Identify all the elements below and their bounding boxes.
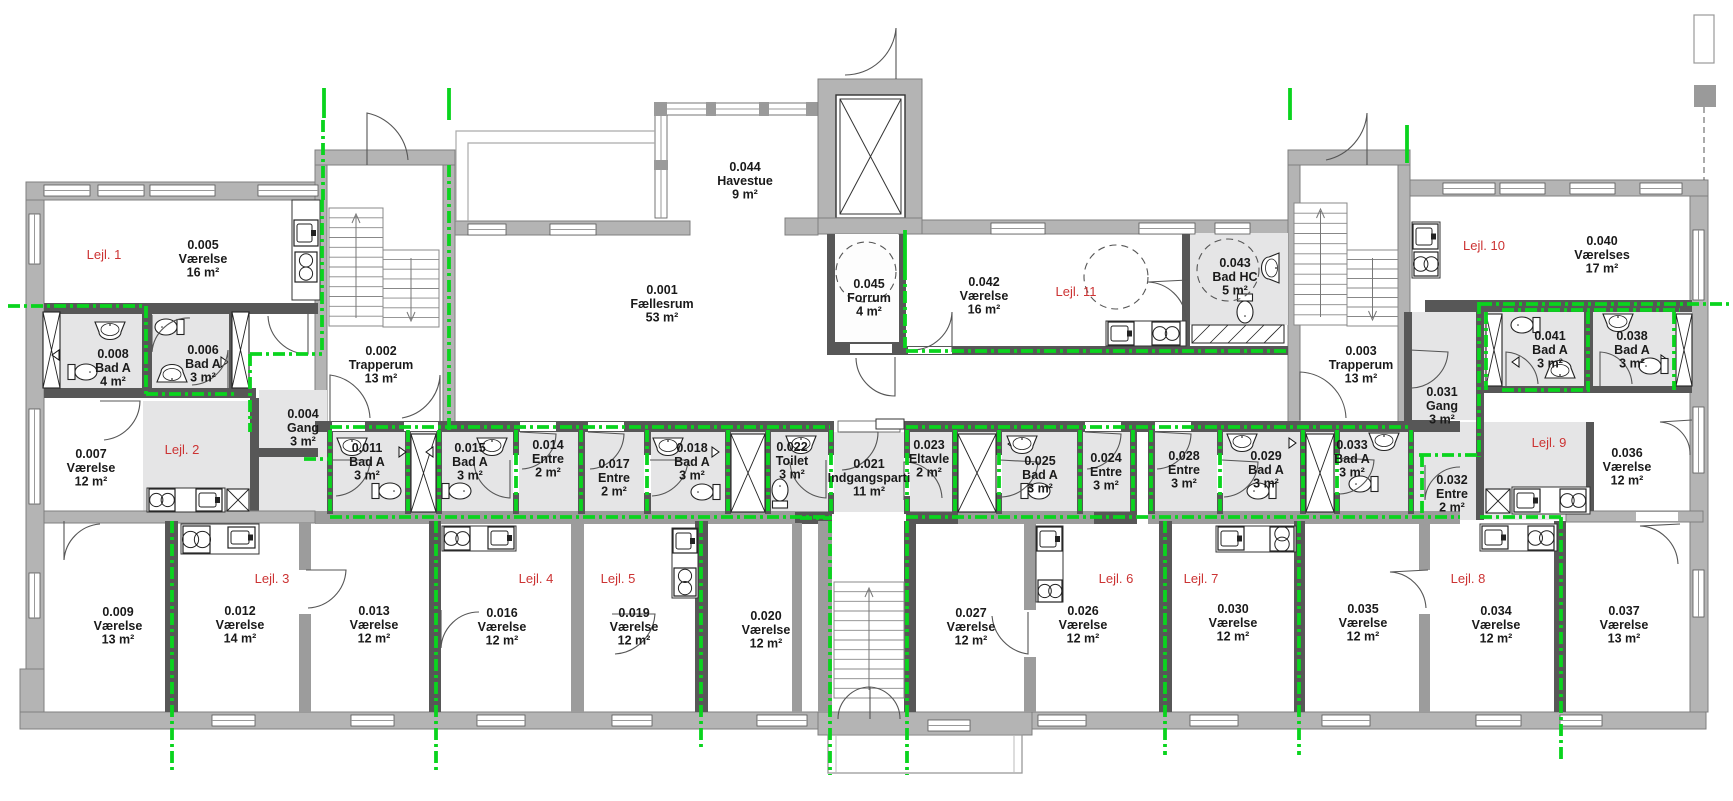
svg-text:Lejl. 1: Lejl. 1 xyxy=(87,247,122,262)
svg-text:0.028Entre3 m²: 0.028Entre3 m² xyxy=(1168,449,1200,491)
svg-text:0.029Bad A3 m²: 0.029Bad A3 m² xyxy=(1248,449,1284,491)
svg-text:0.008Bad A4 m²: 0.008Bad A4 m² xyxy=(95,347,131,389)
svg-text:0.033Bad A3 m²: 0.033Bad A3 m² xyxy=(1334,438,1370,480)
svg-text:Lejl. 11: Lejl. 11 xyxy=(1056,284,1097,299)
svg-text:0.025Bad A3 m²: 0.025Bad A3 m² xyxy=(1022,454,1058,496)
svg-text:0.022Toilet3 m²: 0.022Toilet3 m² xyxy=(776,440,809,482)
svg-text:0.038Bad A3 m²: 0.038Bad A3 m² xyxy=(1614,329,1650,371)
svg-text:Lejl. 5: Lejl. 5 xyxy=(601,571,636,586)
svg-text:0.006Bad A3 m²: 0.006Bad A3 m² xyxy=(185,343,221,385)
svg-text:0.004Gang3 m²: 0.004Gang3 m² xyxy=(287,407,319,449)
svg-text:Lejl. 9: Lejl. 9 xyxy=(1532,435,1567,450)
svg-text:Lejl. 4: Lejl. 4 xyxy=(519,571,554,586)
svg-text:0.041Bad A3 m²: 0.041Bad A3 m² xyxy=(1532,329,1568,371)
svg-text:0.032Entre2 m²: 0.032Entre2 m² xyxy=(1436,473,1468,515)
svg-text:0.031Gang3 m²: 0.031Gang3 m² xyxy=(1426,385,1458,427)
svg-text:Lejl. 7: Lejl. 7 xyxy=(1184,571,1219,586)
svg-text:0.011Bad A3 m²: 0.011Bad A3 m² xyxy=(349,441,385,483)
svg-text:Lejl. 2: Lejl. 2 xyxy=(165,442,200,457)
svg-text:Lejl. 3: Lejl. 3 xyxy=(255,571,290,586)
svg-text:0.018Bad A3 m²: 0.018Bad A3 m² xyxy=(674,441,710,483)
svg-text:Lejl. 8: Lejl. 8 xyxy=(1451,571,1486,586)
svg-text:0.017Entre2 m²: 0.017Entre2 m² xyxy=(598,457,630,499)
svg-text:Lejl. 6: Lejl. 6 xyxy=(1099,571,1134,586)
svg-text:0.015Bad A3 m²: 0.015Bad A3 m² xyxy=(452,441,488,483)
svg-text:0.024Entre3 m²: 0.024Entre3 m² xyxy=(1090,451,1122,493)
svg-text:Lejl. 10: Lejl. 10 xyxy=(1463,238,1505,253)
svg-text:0.014Entre2 m²: 0.014Entre2 m² xyxy=(532,438,564,480)
